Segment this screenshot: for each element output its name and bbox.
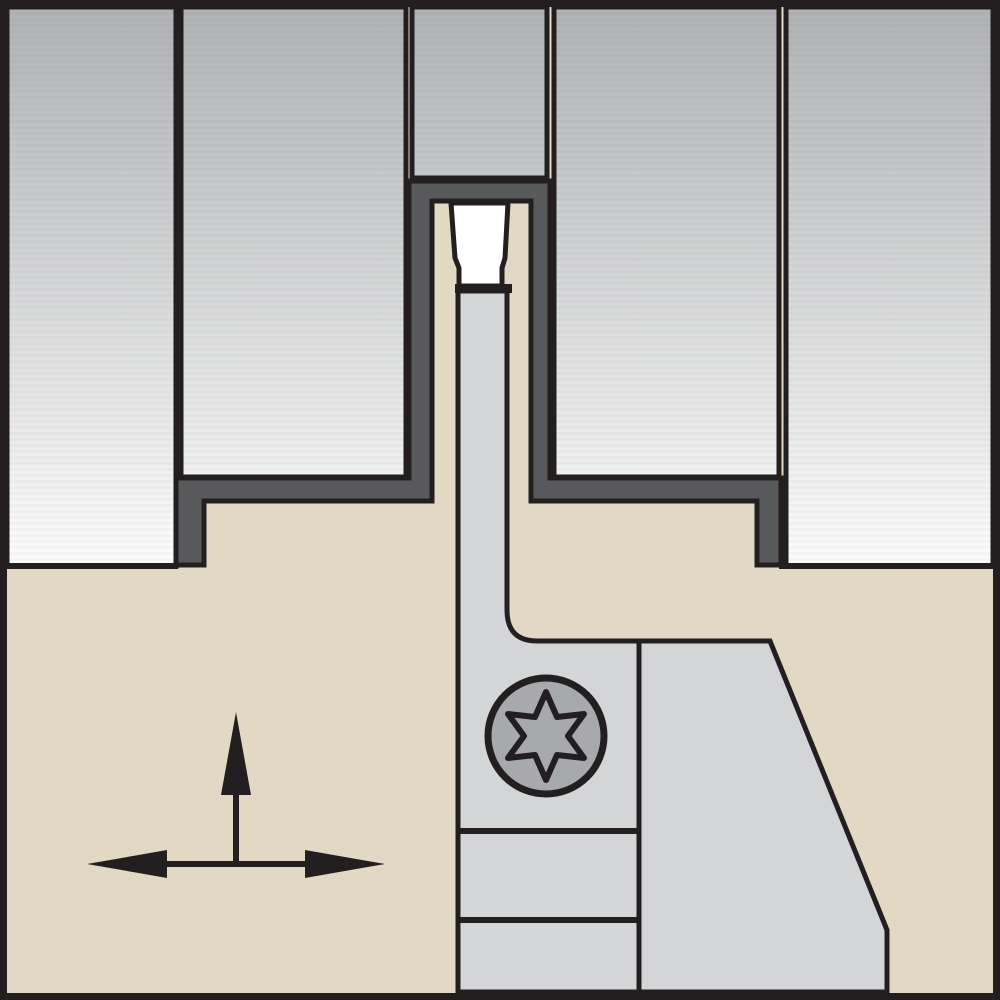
up-arrow-shaft — [233, 793, 239, 867]
diagram-root — [0, 0, 1000, 1000]
blade-section-line-upper — [458, 828, 639, 834]
tool-cross-section-diagram — [0, 0, 1000, 1000]
cutting-insert — [451, 203, 508, 286]
holder-top-edge-left — [7, 563, 178, 569]
torx-clamp-screw — [488, 678, 604, 794]
workpiece-texture — [786, 7, 993, 566]
workpiece-texture — [181, 7, 406, 477]
blade-section-line-lower — [458, 917, 639, 923]
workpiece-texture — [412, 7, 547, 178]
horizontal-arrow-shaft — [165, 861, 306, 867]
holder-top-edge-right — [779, 563, 993, 569]
diagram-stage — [0, 0, 1000, 1000]
workpiece-texture — [554, 7, 779, 477]
workpiece-texture — [7, 7, 176, 566]
